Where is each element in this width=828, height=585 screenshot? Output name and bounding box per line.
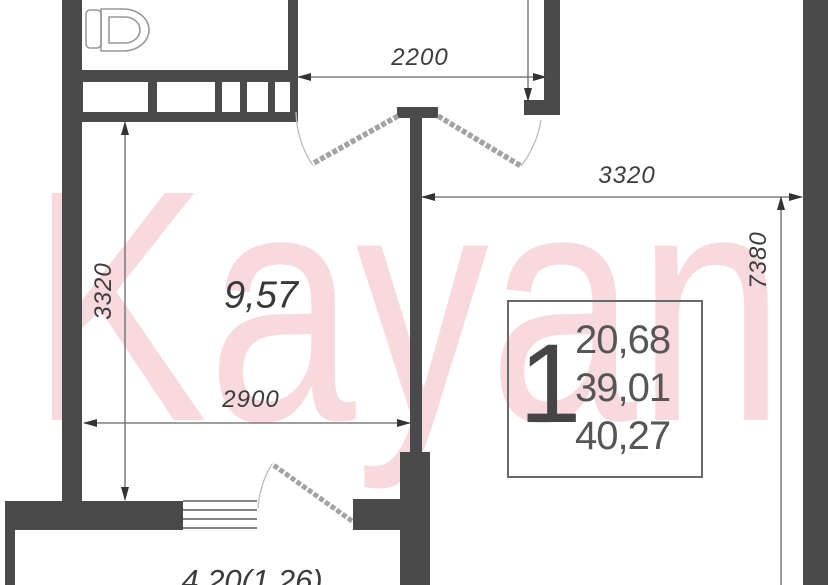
wall-lower-block — [400, 452, 430, 585]
vent-band-openings — [83, 82, 290, 112]
door-arc-right — [521, 120, 541, 166]
doors — [258, 112, 541, 521]
door-leaf-left — [312, 116, 398, 164]
wall-bottom-right — [353, 499, 400, 530]
toilet-icon — [86, 9, 149, 51]
dimension-arrows — [83, 73, 803, 501]
wall-balcony-left — [5, 530, 15, 585]
door-leaf-right — [438, 116, 521, 166]
wall-top-stub — [288, 0, 298, 75]
door-leaf-balcony — [272, 464, 352, 521]
floorplan-image: Kayan — [0, 0, 828, 585]
door-arc-balcony — [258, 464, 272, 508]
door-arc-left — [296, 112, 312, 164]
wall-bottom-left — [5, 501, 183, 530]
plan-drawing — [0, 0, 828, 585]
wall-partition-cap — [397, 107, 438, 118]
balcony-window — [183, 499, 257, 530]
wall-hall-right — [544, 0, 560, 115]
wall-right-outer — [803, 0, 828, 585]
wall-partition — [410, 118, 422, 452]
wall-hall-right-foot — [524, 100, 560, 115]
